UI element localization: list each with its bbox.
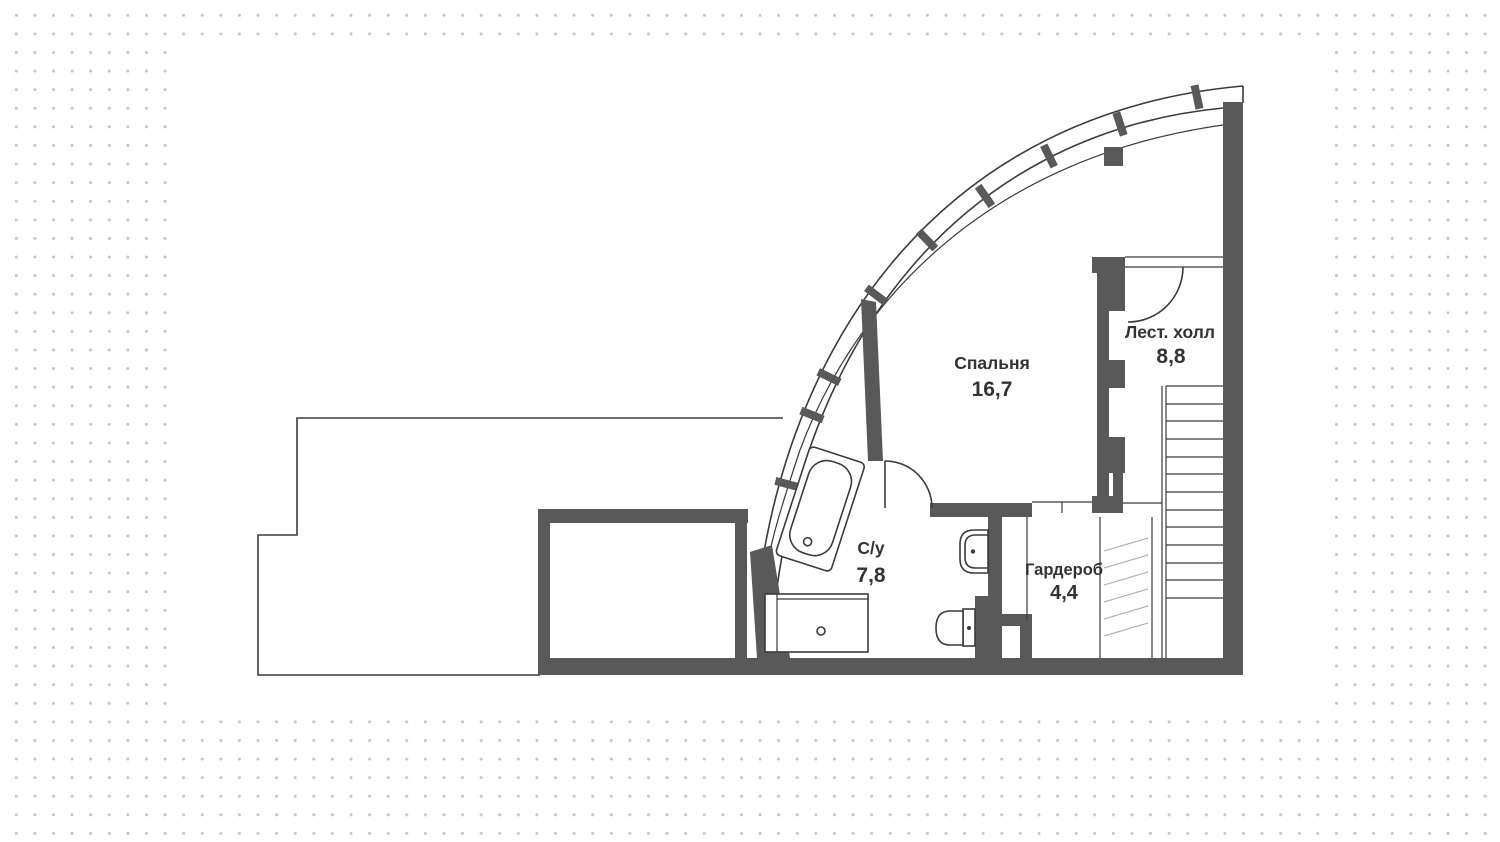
- wardrobe-hatch: [1100, 517, 1152, 658]
- hall-wall-tooth3: [1109, 437, 1125, 473]
- wall-toilet-jog: [975, 596, 988, 658]
- hall-wall-cap-top: [1092, 257, 1125, 273]
- hall-door: [1125, 257, 1223, 322]
- wall-room-left: [538, 509, 550, 675]
- bathroom-door: [885, 461, 932, 508]
- column: [1104, 147, 1123, 166]
- wall-bath-north: [930, 503, 1032, 517]
- room-label-wardrobe: Гардероб: [1025, 561, 1103, 579]
- wall-bath-east: [988, 517, 1002, 658]
- wall-bottom: [538, 658, 1243, 675]
- hall-door-lintel: [1125, 257, 1223, 267]
- wall-room-top: [538, 509, 748, 523]
- room-label-bedroom: Спальня: [954, 353, 1030, 373]
- wall-room-right: [735, 523, 747, 658]
- hall-wall-narrow: [1113, 473, 1123, 498]
- bathroom-door-arc: [885, 461, 932, 508]
- niche-strip: [1020, 626, 1032, 658]
- floor-plan: Спальня 16,7 Лест. холл 8,8 С/у 7,8 Гард…: [0, 0, 1500, 842]
- room-label-stair-hall: Лест. холл: [1125, 322, 1215, 342]
- bathtub: [775, 446, 865, 572]
- room-labels: Спальня 16,7 Лест. холл 8,8 С/у 7,8 Гард…: [856, 322, 1215, 604]
- room-area-bathroom: 7,8: [856, 564, 886, 587]
- staircase: [1162, 386, 1223, 658]
- shower-tray: [765, 594, 868, 652]
- room-area-stair-hall: 8,8: [1156, 345, 1186, 368]
- toilet: [936, 609, 975, 646]
- hall-wall-tooth2: [1109, 360, 1125, 388]
- wall-right: [1223, 102, 1243, 675]
- room-area-wardrobe: 4,4: [1050, 582, 1079, 604]
- hall-wall-tooth1: [1109, 273, 1125, 311]
- glazing-mullions: [774, 84, 1203, 491]
- hall-door-arc: [1128, 267, 1183, 322]
- sink: [960, 530, 988, 573]
- room-area-bedroom: 16,7: [972, 378, 1013, 401]
- hall-wall-strip: [1097, 273, 1109, 496]
- hall-wall-cap-bottom: [1092, 496, 1123, 513]
- wall-bedroom-bath: [861, 299, 883, 461]
- room-label-bathroom: С/у: [857, 538, 885, 558]
- walls: [538, 102, 1243, 675]
- floor-plan-canvas: Спальня 16,7 Лест. холл 8,8 С/у 7,8 Гард…: [0, 0, 1500, 842]
- annex-outline: [258, 418, 783, 675]
